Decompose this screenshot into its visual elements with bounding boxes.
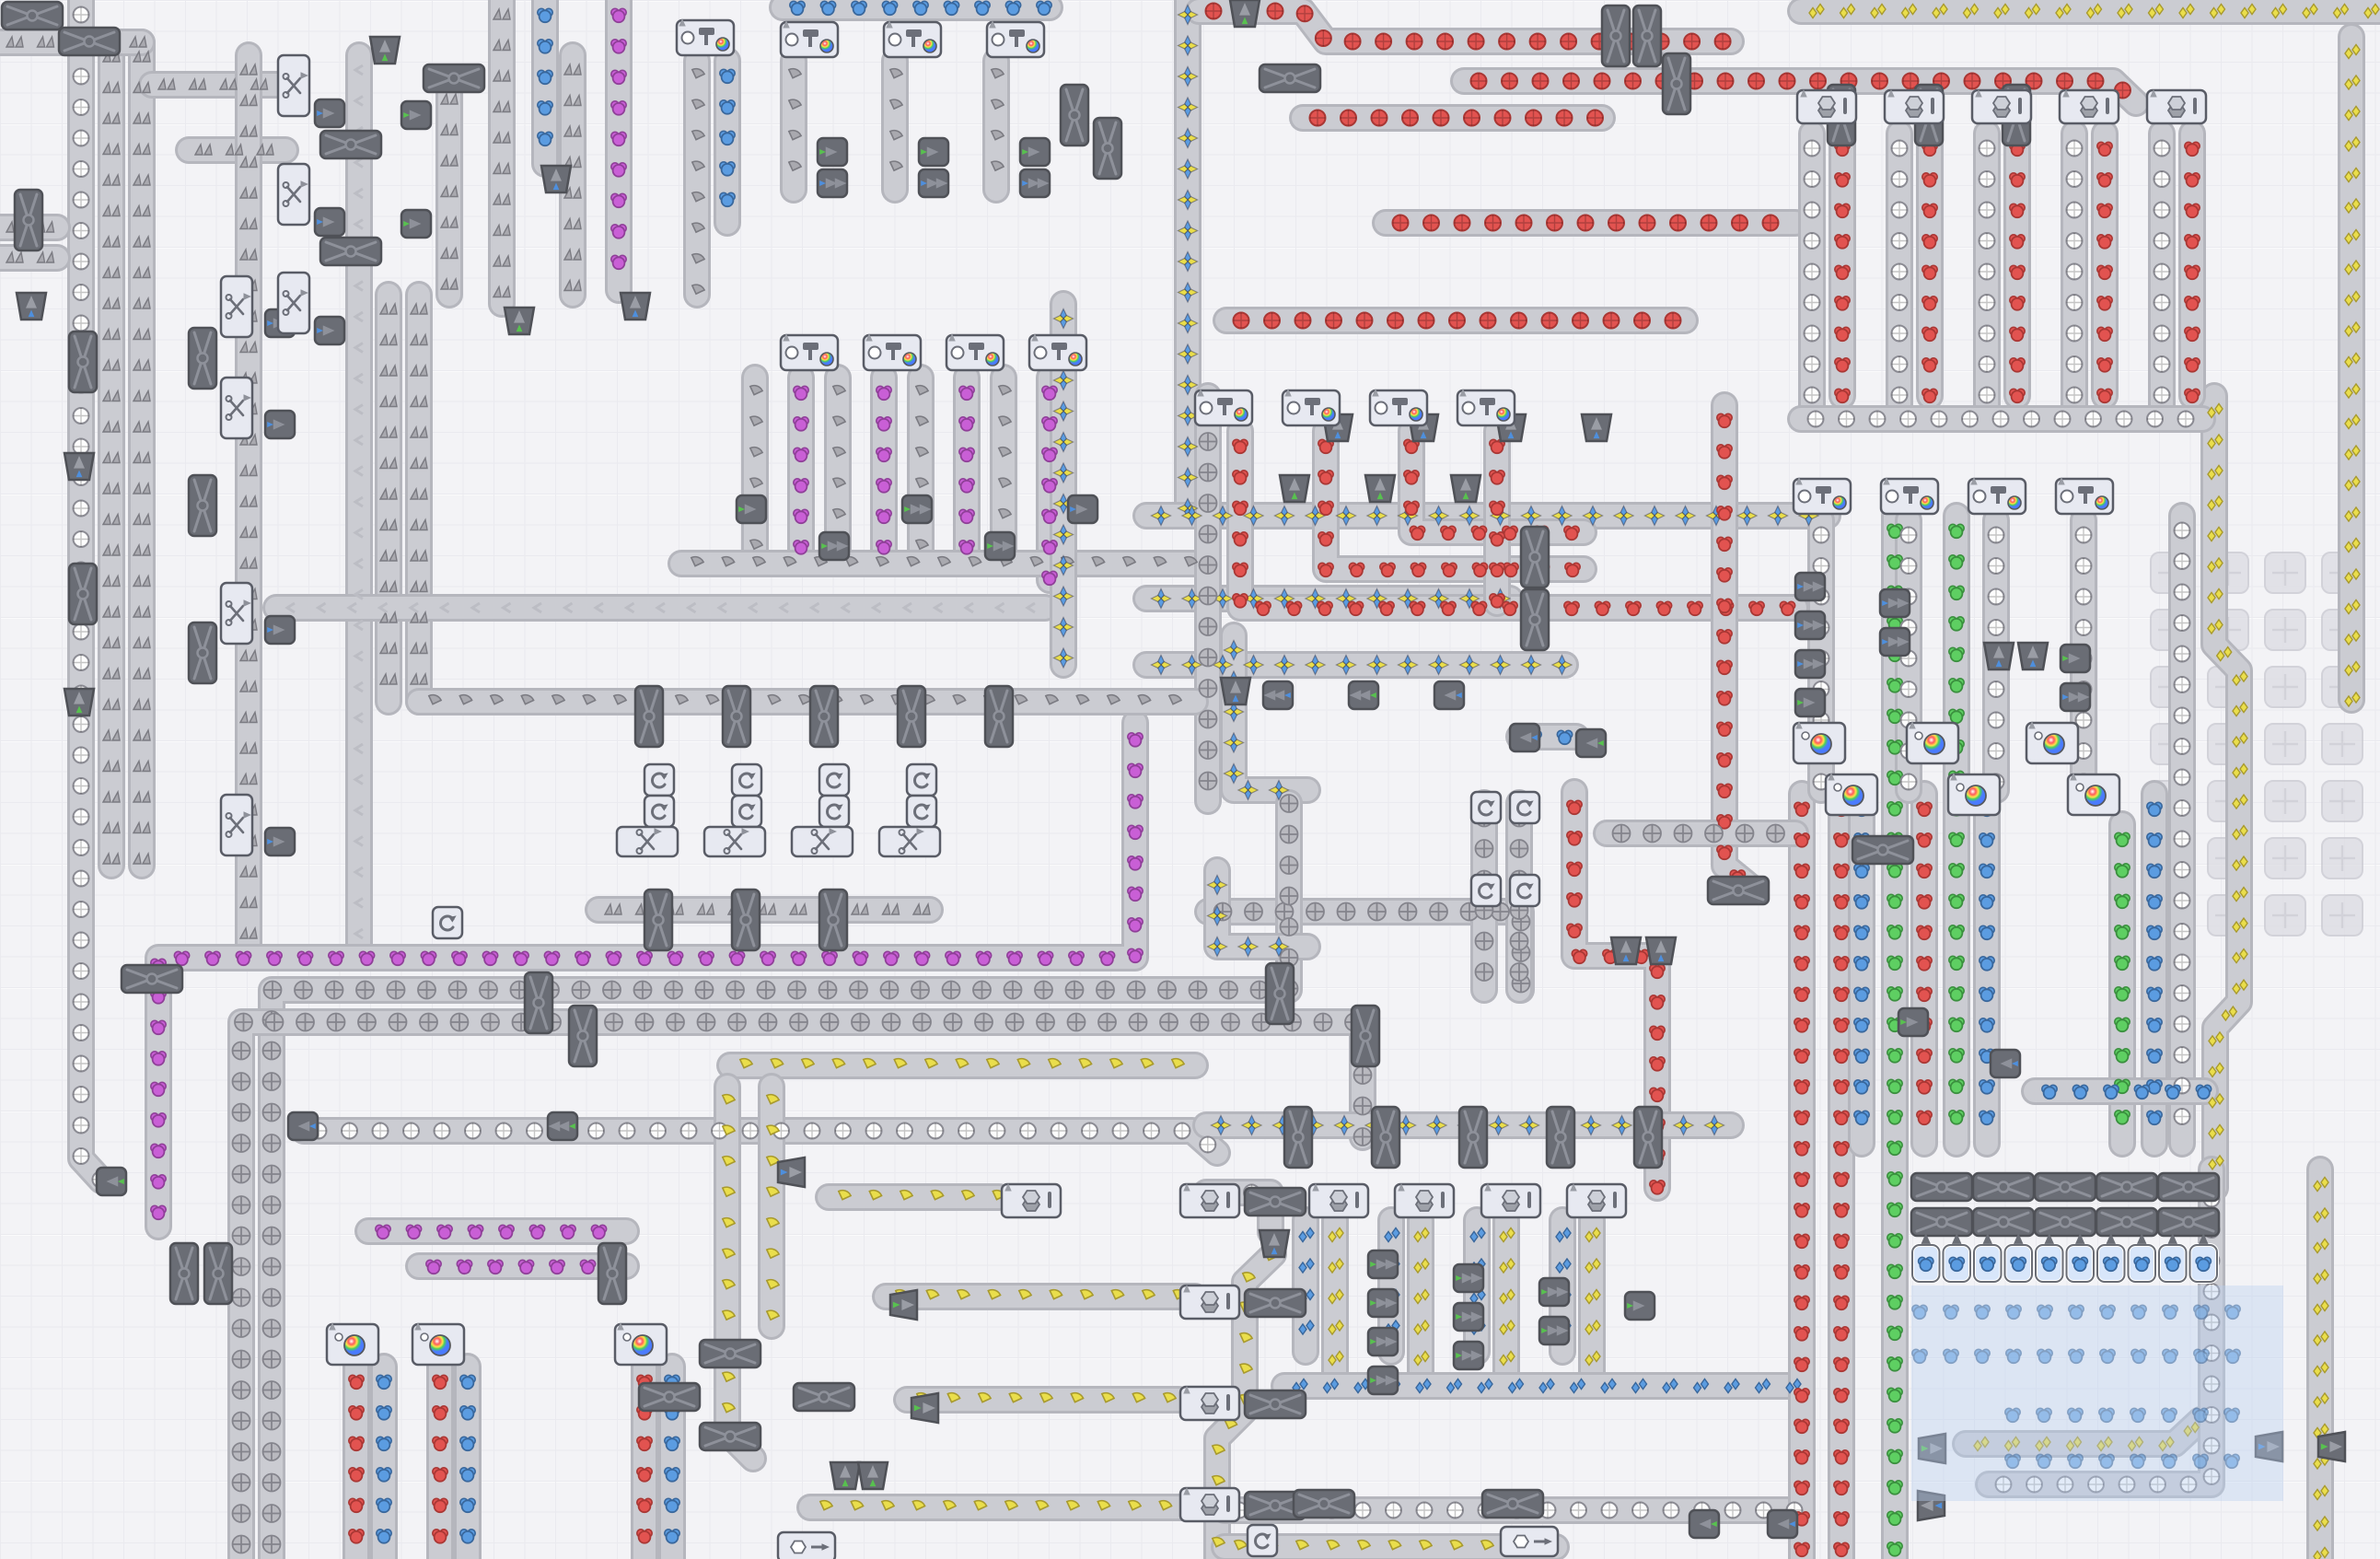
stacker[interactable]	[1180, 1386, 1239, 1420]
shape-item-circ-white	[1892, 141, 1908, 157]
stacker[interactable]	[1481, 1183, 1540, 1217]
balancer[interactable]	[2, 2, 63, 29]
merger[interactable]	[315, 317, 344, 344]
painter[interactable]	[2056, 477, 2113, 514]
merger[interactable]	[1068, 495, 1097, 523]
balancer[interactable]	[2158, 1208, 2219, 1236]
painter[interactable]	[1370, 389, 1427, 425]
painter[interactable]	[987, 20, 1044, 57]
rotator[interactable]	[1510, 792, 1539, 823]
balancer[interactable]	[569, 1006, 597, 1066]
balancer[interactable]	[525, 972, 552, 1033]
shape-item-circ-red	[1561, 34, 1576, 50]
balancer[interactable]	[700, 1423, 760, 1450]
merger[interactable]	[819, 532, 849, 560]
balancer[interactable]	[1245, 1188, 1306, 1216]
tunnel[interactable]	[1230, 0, 1260, 27]
rotator[interactable]	[1471, 875, 1501, 906]
shape-item-puff-red	[1835, 389, 1850, 402]
balancer[interactable]	[1352, 1006, 1379, 1066]
merger[interactable]	[1768, 1510, 1797, 1538]
shape-item-circ-white	[1900, 412, 1916, 427]
balancer[interactable]	[320, 238, 381, 265]
shape-item-puff-blue	[1979, 833, 1994, 847]
tunnel[interactable]	[2018, 643, 2048, 669]
stacker[interactable]	[1309, 1183, 1368, 1217]
balancer[interactable]	[732, 890, 760, 950]
shape-item-circ-white	[1082, 1123, 1097, 1139]
shape-item-puff-green	[1887, 1481, 1902, 1495]
cutter[interactable]	[221, 583, 252, 644]
shape-item-circ-white	[620, 1123, 635, 1139]
merger[interactable]	[1795, 611, 1825, 639]
cutter[interactable]	[221, 276, 252, 337]
rotator[interactable]	[1248, 1525, 1277, 1556]
merger[interactable]	[1454, 1303, 1483, 1331]
color-mixer[interactable]	[412, 1322, 464, 1365]
storage-cell[interactable]	[2067, 1233, 2095, 1282]
shape-item-puff-purple	[575, 951, 590, 965]
color-mixer[interactable]	[1826, 773, 1877, 815]
shape-item-plus-gray	[264, 982, 282, 999]
stacker[interactable]	[1885, 89, 1944, 123]
balancer[interactable]	[598, 1243, 626, 1304]
rotator[interactable]	[907, 764, 936, 796]
shape-analyzer[interactable]	[778, 1532, 835, 1559]
rotator[interactable]	[1471, 792, 1501, 823]
stacker[interactable]	[1797, 89, 1856, 123]
storage-cell[interactable]	[2005, 1233, 2033, 1282]
shape-item-puff-green	[1887, 1141, 1902, 1155]
balancer[interactable]	[1663, 53, 1690, 114]
shape-item-puff-red	[1717, 445, 1732, 459]
shape-item-plus-gray	[1399, 903, 1417, 921]
balancer[interactable]	[1521, 527, 1549, 588]
color-mixer[interactable]	[2068, 773, 2119, 815]
balancer[interactable]	[794, 1383, 854, 1411]
balancer[interactable]	[1284, 1107, 1312, 1168]
balancer[interactable]	[898, 686, 925, 747]
shape-item-circ-white	[2067, 295, 2083, 310]
shape-item-plus-gray	[263, 1443, 281, 1460]
shape-item-puff-purple	[946, 951, 960, 965]
cutter[interactable]	[617, 827, 678, 856]
cutter[interactable]	[221, 795, 252, 855]
color-mixer[interactable]	[615, 1322, 667, 1365]
painter[interactable]	[946, 333, 1004, 370]
merger[interactable]	[1020, 169, 1050, 197]
rotator[interactable]	[732, 764, 761, 796]
stacker[interactable]	[1972, 89, 2031, 123]
shape-item-puff-blue	[2225, 1349, 2240, 1363]
shape-item-circ-white	[681, 1123, 697, 1139]
shape-item-puff-red	[1411, 563, 1425, 576]
tunnel[interactable]	[64, 689, 94, 716]
balancer[interactable]	[1294, 1490, 1354, 1518]
merger[interactable]	[818, 138, 847, 166]
shape-item-puff-green	[1949, 956, 1964, 970]
balancer[interactable]	[819, 890, 847, 950]
balancer[interactable]	[189, 622, 216, 683]
balancer[interactable]	[1061, 85, 1088, 145]
stacker[interactable]	[1567, 1183, 1626, 1217]
shape-item-circ-white	[1932, 412, 1947, 427]
merger[interactable]	[1368, 1251, 1398, 1278]
merger[interactable]	[1539, 1278, 1569, 1306]
shape-item-circ-white	[1901, 681, 1917, 697]
cutter[interactable]	[792, 827, 853, 856]
stacker[interactable]	[1180, 1487, 1239, 1521]
shape-item-puff-red	[1917, 1111, 1932, 1124]
color-mixer[interactable]	[327, 1322, 378, 1365]
tunnel[interactable]	[370, 37, 400, 64]
balancer[interactable]	[189, 475, 216, 536]
balancer[interactable]	[1852, 836, 1913, 864]
shape-item-puff-blue	[665, 1530, 679, 1543]
merger[interactable]	[2061, 683, 2090, 711]
rotator[interactable]	[433, 907, 462, 938]
shape-item-plus-gray	[482, 1014, 499, 1031]
shape-item-puff-purple	[611, 101, 626, 115]
shape-item-puff-red	[2010, 173, 2025, 187]
shape-item-puff-red	[1256, 601, 1271, 615]
storage-cell[interactable]	[2159, 1233, 2187, 1282]
merger[interactable]	[1795, 573, 1825, 600]
merger[interactable]	[1510, 724, 1539, 751]
merger[interactable]	[97, 1168, 126, 1195]
shape-item-circ-red	[1640, 215, 1655, 231]
shape-item-puff-red	[1490, 594, 1504, 608]
shape-item-puff-green	[1887, 894, 1902, 908]
stacker[interactable]	[1395, 1183, 1454, 1217]
tunnel[interactable]	[1646, 937, 1676, 964]
shape-analyzer[interactable]	[1501, 1527, 1558, 1556]
shape-item-puff-red	[1794, 1172, 1809, 1186]
tunnel[interactable]	[1280, 475, 1309, 502]
shape-item-puff-blue	[2006, 1349, 2021, 1363]
shape-item-circ-white	[496, 1123, 512, 1139]
balancer[interactable]	[1634, 1107, 1662, 1168]
shape-item-puff-blue	[2131, 1349, 2146, 1363]
painter[interactable]	[864, 333, 921, 370]
balancer[interactable]	[1633, 6, 1661, 66]
balancer[interactable]	[170, 1243, 198, 1304]
balancer[interactable]	[1521, 589, 1549, 650]
shape-item-puff-blue	[2005, 1408, 2020, 1422]
stacker[interactable]	[2060, 89, 2119, 123]
shape-item-circ-red	[1485, 215, 1501, 231]
balancer[interactable]	[810, 686, 838, 747]
painter[interactable]	[1283, 389, 1340, 425]
shape-item-circ-red	[1810, 74, 1826, 89]
painter[interactable]	[1794, 477, 1851, 514]
shape-item-circ-white	[1144, 1123, 1159, 1139]
cutter[interactable]	[879, 827, 940, 856]
tunnel[interactable]	[2318, 1432, 2345, 1461]
storage-cell[interactable]	[1944, 1233, 1971, 1282]
game-canvas[interactable]	[0, 0, 2380, 1559]
color-mixer[interactable]	[2026, 721, 2078, 763]
balancer[interactable]	[1973, 1208, 2034, 1236]
tunnel[interactable]	[911, 1393, 938, 1423]
balancer[interactable]	[1245, 1390, 1306, 1418]
merger[interactable]	[1880, 628, 1910, 656]
shape-item-puff-red	[1834, 1049, 1849, 1063]
shape-item-circ-white	[74, 995, 89, 1010]
shape-item-puff-blue	[2196, 1085, 2211, 1099]
merger[interactable]	[315, 208, 344, 236]
merger[interactable]	[1368, 1328, 1398, 1355]
stacker[interactable]	[1180, 1183, 1239, 1217]
tunnel[interactable]	[1221, 678, 1250, 704]
cutter[interactable]	[278, 273, 309, 333]
balancer[interactable]	[985, 686, 1013, 747]
storage-cell[interactable]	[1974, 1233, 2002, 1282]
painter[interactable]	[677, 18, 734, 55]
tunnel[interactable]	[621, 293, 650, 320]
shape-item-circ-white	[74, 1118, 89, 1134]
shape-item-plus-gray	[1476, 933, 1493, 950]
merger[interactable]	[1368, 1367, 1398, 1394]
shape-item-circ-white	[2175, 800, 2190, 816]
balancer[interactable]	[204, 1243, 232, 1304]
balancer[interactable]	[320, 131, 381, 158]
storage-cell[interactable]	[2036, 1233, 2063, 1282]
shape-item-plus-gray	[263, 1073, 281, 1090]
merger[interactable]	[1880, 589, 1910, 617]
shape-item-puff-green	[1887, 1542, 1902, 1556]
shape-item-puff-blue	[2134, 1257, 2149, 1271]
shape-item-puff-blue	[1854, 864, 1869, 878]
tunnel[interactable]	[830, 1462, 860, 1489]
balancer[interactable]	[700, 1340, 760, 1367]
painter[interactable]	[884, 20, 941, 57]
shape-item-puff-blue	[2147, 1049, 2162, 1063]
balancer[interactable]	[122, 965, 182, 993]
shape-item-puff-red	[1794, 833, 1809, 847]
shape-item-puff-red	[2097, 142, 2112, 156]
stacker[interactable]	[1002, 1183, 1061, 1217]
merger[interactable]	[1795, 650, 1825, 678]
rotator[interactable]	[1510, 875, 1539, 906]
balancer[interactable]	[1372, 1107, 1399, 1168]
merger[interactable]	[288, 1112, 318, 1140]
painter[interactable]	[1195, 389, 1252, 425]
balancer[interactable]	[2035, 1173, 2096, 1201]
painter[interactable]	[781, 20, 838, 57]
balancer[interactable]	[1245, 1289, 1306, 1317]
shape-item-circ-red	[1608, 215, 1624, 231]
shape-item-puff-purple	[959, 509, 974, 523]
rotator[interactable]	[644, 796, 674, 827]
merger[interactable]	[902, 495, 932, 523]
merger[interactable]	[1898, 1008, 1928, 1036]
painter[interactable]	[1968, 477, 2026, 514]
merger[interactable]	[2061, 645, 2090, 672]
shape-item-puff-red	[1472, 563, 1487, 576]
merger[interactable]	[737, 495, 766, 523]
shape-item-puff-red	[1490, 501, 1504, 515]
shape-item-puff-red	[1834, 1296, 1849, 1309]
shape-item-plus-gray	[1037, 1014, 1054, 1031]
storage-cell[interactable]	[2097, 1233, 2125, 1282]
balancer[interactable]	[1547, 1107, 1574, 1168]
shape-item-puff-blue	[2147, 1018, 2162, 1032]
shape-item-circ-red	[1557, 111, 1573, 126]
shape-item-circ-white	[2076, 589, 2092, 605]
merger[interactable]	[1349, 681, 1378, 709]
merger[interactable]	[265, 411, 295, 438]
shape-item-puff-blue	[2072, 1257, 2087, 1271]
cutter[interactable]	[221, 378, 252, 438]
balancer[interactable]	[1260, 64, 1320, 92]
tunnel[interactable]	[505, 308, 534, 334]
merger[interactable]	[548, 1112, 577, 1140]
color-mixer[interactable]	[1907, 721, 1958, 763]
shape-item-puff-red	[2010, 327, 2025, 341]
balancer[interactable]	[1094, 118, 1121, 179]
merger[interactable]	[1539, 1317, 1569, 1344]
tunnel[interactable]	[1260, 1230, 1289, 1257]
merger[interactable]	[401, 101, 431, 129]
shape-item-puff-red	[1410, 601, 1424, 615]
shape-item-puff-purple	[611, 225, 626, 239]
shape-item-puff-blue	[2134, 1085, 2149, 1099]
balancer[interactable]	[2096, 1173, 2157, 1201]
tunnel[interactable]	[541, 166, 571, 192]
balancer[interactable]	[59, 28, 120, 55]
balancer[interactable]	[1266, 963, 1294, 1024]
merger[interactable]	[401, 210, 431, 238]
color-mixer[interactable]	[1948, 773, 2000, 815]
balancer[interactable]	[424, 64, 484, 92]
shape-item-plus-gray	[945, 1014, 962, 1031]
shape-item-puff-blue	[460, 1375, 475, 1389]
shape-item-circ-red	[1965, 74, 1980, 89]
merger[interactable]	[1689, 1510, 1719, 1538]
merger[interactable]	[1795, 689, 1825, 716]
painter[interactable]	[1457, 389, 1515, 425]
merger[interactable]	[919, 169, 948, 197]
merger[interactable]	[1454, 1342, 1483, 1369]
shape-item-puff-blue	[2193, 1454, 2208, 1468]
balancer[interactable]	[635, 686, 663, 747]
shape-item-circ-white	[1814, 558, 1829, 574]
storage-cell[interactable]	[1912, 1233, 1940, 1282]
shape-item-puff-green	[1949, 555, 1964, 569]
shape-item-puff-red	[2097, 235, 2112, 249]
painter[interactable]	[1029, 333, 1086, 370]
merger[interactable]	[265, 616, 295, 644]
shape-item-circ-white	[1051, 1123, 1067, 1139]
stacker[interactable]	[2147, 89, 2206, 123]
cutter[interactable]	[278, 164, 309, 225]
balancer[interactable]	[15, 190, 42, 250]
shape-item-plus-gray	[850, 982, 867, 999]
tunnel[interactable]	[1451, 475, 1480, 502]
balancer[interactable]	[644, 890, 672, 950]
merger[interactable]	[315, 99, 344, 127]
merger[interactable]	[1368, 1289, 1398, 1317]
cutter[interactable]	[278, 55, 309, 116]
shape-item-plus-gray	[1281, 795, 1298, 812]
tunnel[interactable]	[890, 1290, 917, 1320]
shape-item-puff-red	[1490, 563, 1504, 576]
balancer[interactable]	[1602, 6, 1630, 66]
merger[interactable]	[1454, 1264, 1483, 1292]
balancer[interactable]	[1911, 1208, 1972, 1236]
rotator[interactable]	[732, 796, 761, 827]
balancer[interactable]	[1708, 877, 1769, 904]
rotator[interactable]	[819, 764, 849, 796]
shape-item-circ-white	[1979, 295, 1995, 310]
shape-item-puff-purple	[959, 417, 974, 431]
balancer[interactable]	[639, 1383, 700, 1411]
merger[interactable]	[1991, 1050, 2020, 1077]
rotator[interactable]	[907, 796, 936, 827]
shape-item-puff-red	[1834, 1542, 1849, 1556]
tunnel[interactable]	[778, 1158, 805, 1187]
shape-item-circ-white	[1989, 620, 2004, 635]
merger[interactable]	[1020, 138, 1050, 166]
balancer[interactable]	[1973, 1173, 2034, 1201]
shape-item-circ-white	[1447, 1503, 1463, 1518]
balancer[interactable]	[69, 564, 97, 624]
balancer[interactable]	[189, 328, 216, 389]
shape-item-puff-green	[1887, 956, 1902, 970]
balancer[interactable]	[2158, 1173, 2219, 1201]
cutter[interactable]	[704, 827, 765, 856]
shape-item-plus-gray	[263, 1258, 281, 1275]
color-mixer[interactable]	[1794, 721, 1845, 763]
merger[interactable]	[265, 828, 295, 855]
painter[interactable]	[781, 333, 838, 370]
merger[interactable]	[1576, 729, 1606, 757]
painter[interactable]	[1881, 477, 1938, 514]
tunnel[interactable]	[1611, 937, 1641, 964]
shape-item-puff-red	[1794, 1018, 1809, 1032]
balancer[interactable]	[1911, 1173, 1972, 1201]
storage-cell[interactable]	[2129, 1233, 2156, 1282]
balancer[interactable]	[723, 686, 750, 747]
factory-viewport[interactable]	[0, 0, 2380, 1559]
merger[interactable]	[818, 169, 847, 197]
balancer[interactable]	[2096, 1208, 2157, 1236]
tunnel[interactable]	[17, 293, 46, 320]
merger[interactable]	[985, 532, 1015, 560]
balancer[interactable]	[69, 332, 97, 392]
merger[interactable]	[1263, 681, 1293, 709]
tunnel[interactable]	[1365, 475, 1395, 502]
balancer[interactable]	[1459, 1107, 1487, 1168]
tunnel[interactable]	[64, 453, 94, 480]
merger[interactable]	[919, 138, 948, 166]
merger[interactable]	[1625, 1292, 1654, 1320]
tunnel[interactable]	[1984, 643, 2014, 669]
balancer[interactable]	[1482, 1490, 1543, 1518]
stacker[interactable]	[1180, 1285, 1239, 1319]
shape-item-puff-purple	[853, 951, 867, 965]
shape-item-circ-white	[435, 1123, 450, 1139]
rotator[interactable]	[644, 764, 674, 796]
shape-item-plus-gray	[605, 1014, 622, 1031]
balancer[interactable]	[2035, 1208, 2096, 1236]
tunnel[interactable]	[1582, 414, 1611, 441]
merger[interactable]	[1434, 681, 1464, 709]
tunnel[interactable]	[858, 1462, 888, 1489]
shape-item-puff-blue	[852, 1, 866, 15]
rotator[interactable]	[819, 796, 849, 827]
